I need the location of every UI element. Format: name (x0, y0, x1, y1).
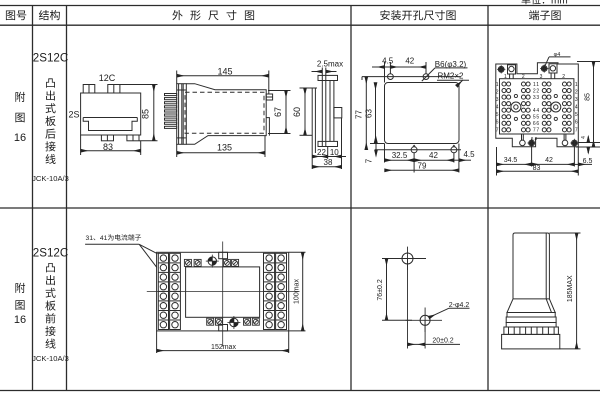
svg-text:63: 63 (364, 109, 373, 118)
svg-text:76±0.2: 76±0.2 (377, 279, 384, 300)
svg-text:85: 85 (141, 109, 151, 119)
svg-text:6.5: 6.5 (583, 158, 593, 165)
svg-text:8.8: 8.8 (531, 136, 538, 141)
svg-text:55: 55 (533, 115, 540, 121)
svg-text:1: 1 (496, 82, 499, 88)
svg-text:83: 83 (533, 165, 541, 172)
svg-text:2.5max: 2.5max (317, 59, 343, 68)
svg-text:22: 22 (317, 148, 326, 157)
svg-text:10: 10 (330, 148, 339, 157)
svg-text:32.5: 32.5 (392, 151, 408, 160)
svg-text:RM2×2: RM2×2 (437, 72, 464, 81)
svg-text:135: 135 (217, 142, 232, 152)
svg-text:67: 67 (273, 107, 283, 117)
svg-text:2: 2 (575, 89, 578, 95)
svg-text:2S12C: 2S12C (33, 247, 68, 260)
svg-text:31: 31 (86, 235, 94, 242)
svg-text:5: 5 (575, 112, 578, 118)
svg-text:1: 1 (504, 74, 507, 80)
svg-text:41: 41 (100, 235, 108, 242)
svg-text:42: 42 (429, 151, 438, 160)
svg-text:3: 3 (540, 74, 543, 80)
svg-text:16: 16 (14, 132, 26, 144)
svg-text:2S12C: 2S12C (33, 51, 68, 64)
svg-text:4: 4 (496, 105, 499, 111)
svg-text:185MAX: 185MAX (567, 275, 574, 302)
svg-text:100max: 100max (294, 279, 301, 304)
svg-text:4.5: 4.5 (382, 57, 394, 66)
svg-text:79: 79 (418, 161, 427, 170)
svg-text:77: 77 (533, 128, 540, 134)
svg-text:3: 3 (575, 97, 578, 103)
svg-text:7: 7 (496, 127, 499, 133)
svg-text:60: 60 (292, 107, 302, 117)
svg-text:38: 38 (324, 158, 333, 167)
svg-text:1: 1 (575, 82, 578, 88)
svg-text:6: 6 (575, 120, 578, 126)
svg-text:145: 145 (217, 66, 232, 76)
svg-text:6: 6 (496, 120, 499, 126)
svg-text:2: 2 (496, 89, 499, 95)
svg-text:5: 5 (496, 112, 499, 118)
svg-text:34.5: 34.5 (504, 157, 518, 164)
svg-text:3: 3 (496, 97, 499, 103)
svg-text:7: 7 (575, 127, 578, 133)
svg-text:33: 33 (533, 95, 540, 101)
svg-text:4: 4 (581, 136, 587, 139)
svg-text:4: 4 (575, 105, 578, 111)
svg-text:2S: 2S (68, 110, 79, 120)
svg-text:JCK-10A/3: JCK-10A/3 (32, 174, 69, 183)
svg-text:7: 7 (365, 158, 374, 163)
svg-text:44: 44 (533, 108, 540, 114)
svg-text:85: 85 (585, 93, 592, 101)
svg-text:11: 11 (533, 82, 540, 88)
svg-text:JCK-10A/3: JCK-10A/3 (32, 354, 69, 363)
svg-text:4.5: 4.5 (463, 150, 475, 159)
svg-text:12C: 12C (99, 73, 116, 83)
svg-text:2: 2 (562, 74, 565, 80)
svg-text:22: 22 (533, 88, 540, 94)
svg-text:66: 66 (533, 121, 540, 127)
svg-text:77: 77 (355, 110, 364, 119)
svg-text:42: 42 (545, 157, 553, 164)
svg-text:2: 2 (522, 74, 525, 80)
svg-text:20±0.2: 20±0.2 (432, 337, 453, 344)
svg-text:42: 42 (405, 57, 414, 66)
svg-text:16: 16 (14, 314, 26, 326)
svg-text:152max: 152max (211, 344, 236, 351)
svg-text:83: 83 (103, 142, 113, 152)
